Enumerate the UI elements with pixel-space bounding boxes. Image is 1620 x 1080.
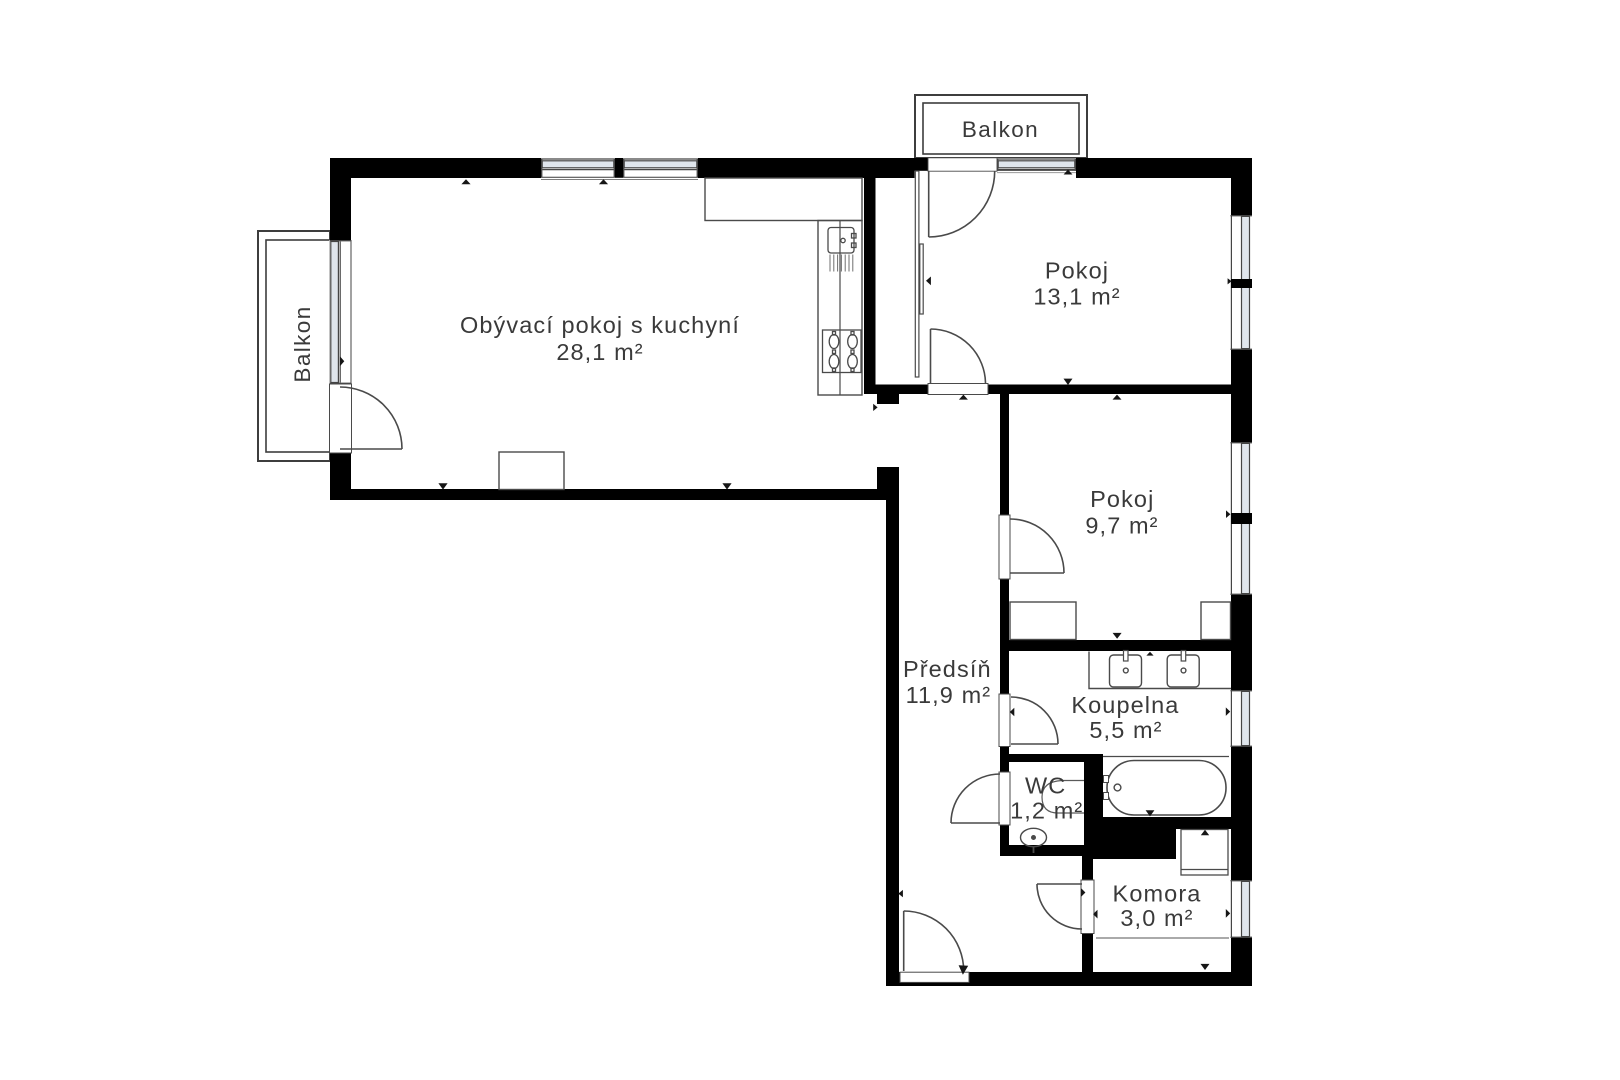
svg-text:1,2 m²: 1,2 m² [1010, 797, 1083, 823]
svg-text:Pokoj: Pokoj [1045, 258, 1109, 284]
svg-text:Komora: Komora [1113, 880, 1202, 906]
svg-text:Obývací pokoj s kuchyní: Obývací pokoj s kuchyní [460, 312, 740, 338]
svg-text:9,7 m²: 9,7 m² [1085, 513, 1158, 539]
svg-text:Předsíň: Předsíň [903, 656, 992, 682]
svg-text:WC: WC [1025, 773, 1066, 799]
svg-text:28,1 m²: 28,1 m² [556, 339, 643, 365]
svg-text:13,1 m²: 13,1 m² [1033, 284, 1120, 310]
svg-text:Balkon: Balkon [290, 305, 315, 382]
svg-text:11,9 m²: 11,9 m² [906, 682, 992, 708]
svg-text:Koupelna: Koupelna [1071, 692, 1179, 718]
svg-text:Pokoj: Pokoj [1090, 486, 1154, 512]
svg-text:3,0 m²: 3,0 m² [1120, 905, 1193, 931]
svg-text:Balkon: Balkon [962, 117, 1039, 142]
svg-text:5,5 m²: 5,5 m² [1089, 717, 1162, 743]
